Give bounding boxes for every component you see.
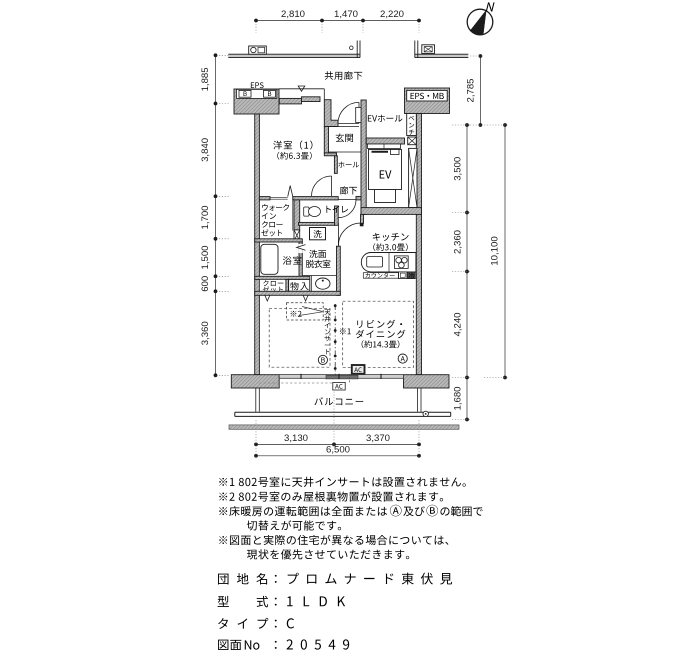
svg-text:600: 600 — [200, 276, 211, 292]
svg-text:1,500: 1,500 — [200, 245, 211, 269]
svg-text:4,240: 4,240 — [453, 312, 464, 336]
svg-text:3,840: 3,840 — [200, 138, 211, 162]
svg-text:6,500: 6,500 — [326, 445, 350, 456]
svg-text:3,130: 3,130 — [284, 433, 308, 444]
svg-text:3,370: 3,370 — [366, 433, 390, 444]
svg-text:1,680: 1,680 — [453, 386, 464, 410]
svg-text:1,700: 1,700 — [200, 205, 211, 229]
svg-text:2,360: 2,360 — [453, 230, 464, 254]
svg-text:1,470: 1,470 — [334, 9, 358, 20]
svg-text:2,810: 2,810 — [281, 9, 305, 20]
svg-text:1,885: 1,885 — [200, 67, 211, 91]
svg-text:3,500: 3,500 — [453, 157, 464, 181]
svg-text:3,360: 3,360 — [200, 321, 211, 345]
svg-text:2,785: 2,785 — [466, 78, 477, 102]
svg-text:10,100: 10,100 — [490, 236, 501, 265]
svg-text:2,220: 2,220 — [380, 9, 404, 20]
